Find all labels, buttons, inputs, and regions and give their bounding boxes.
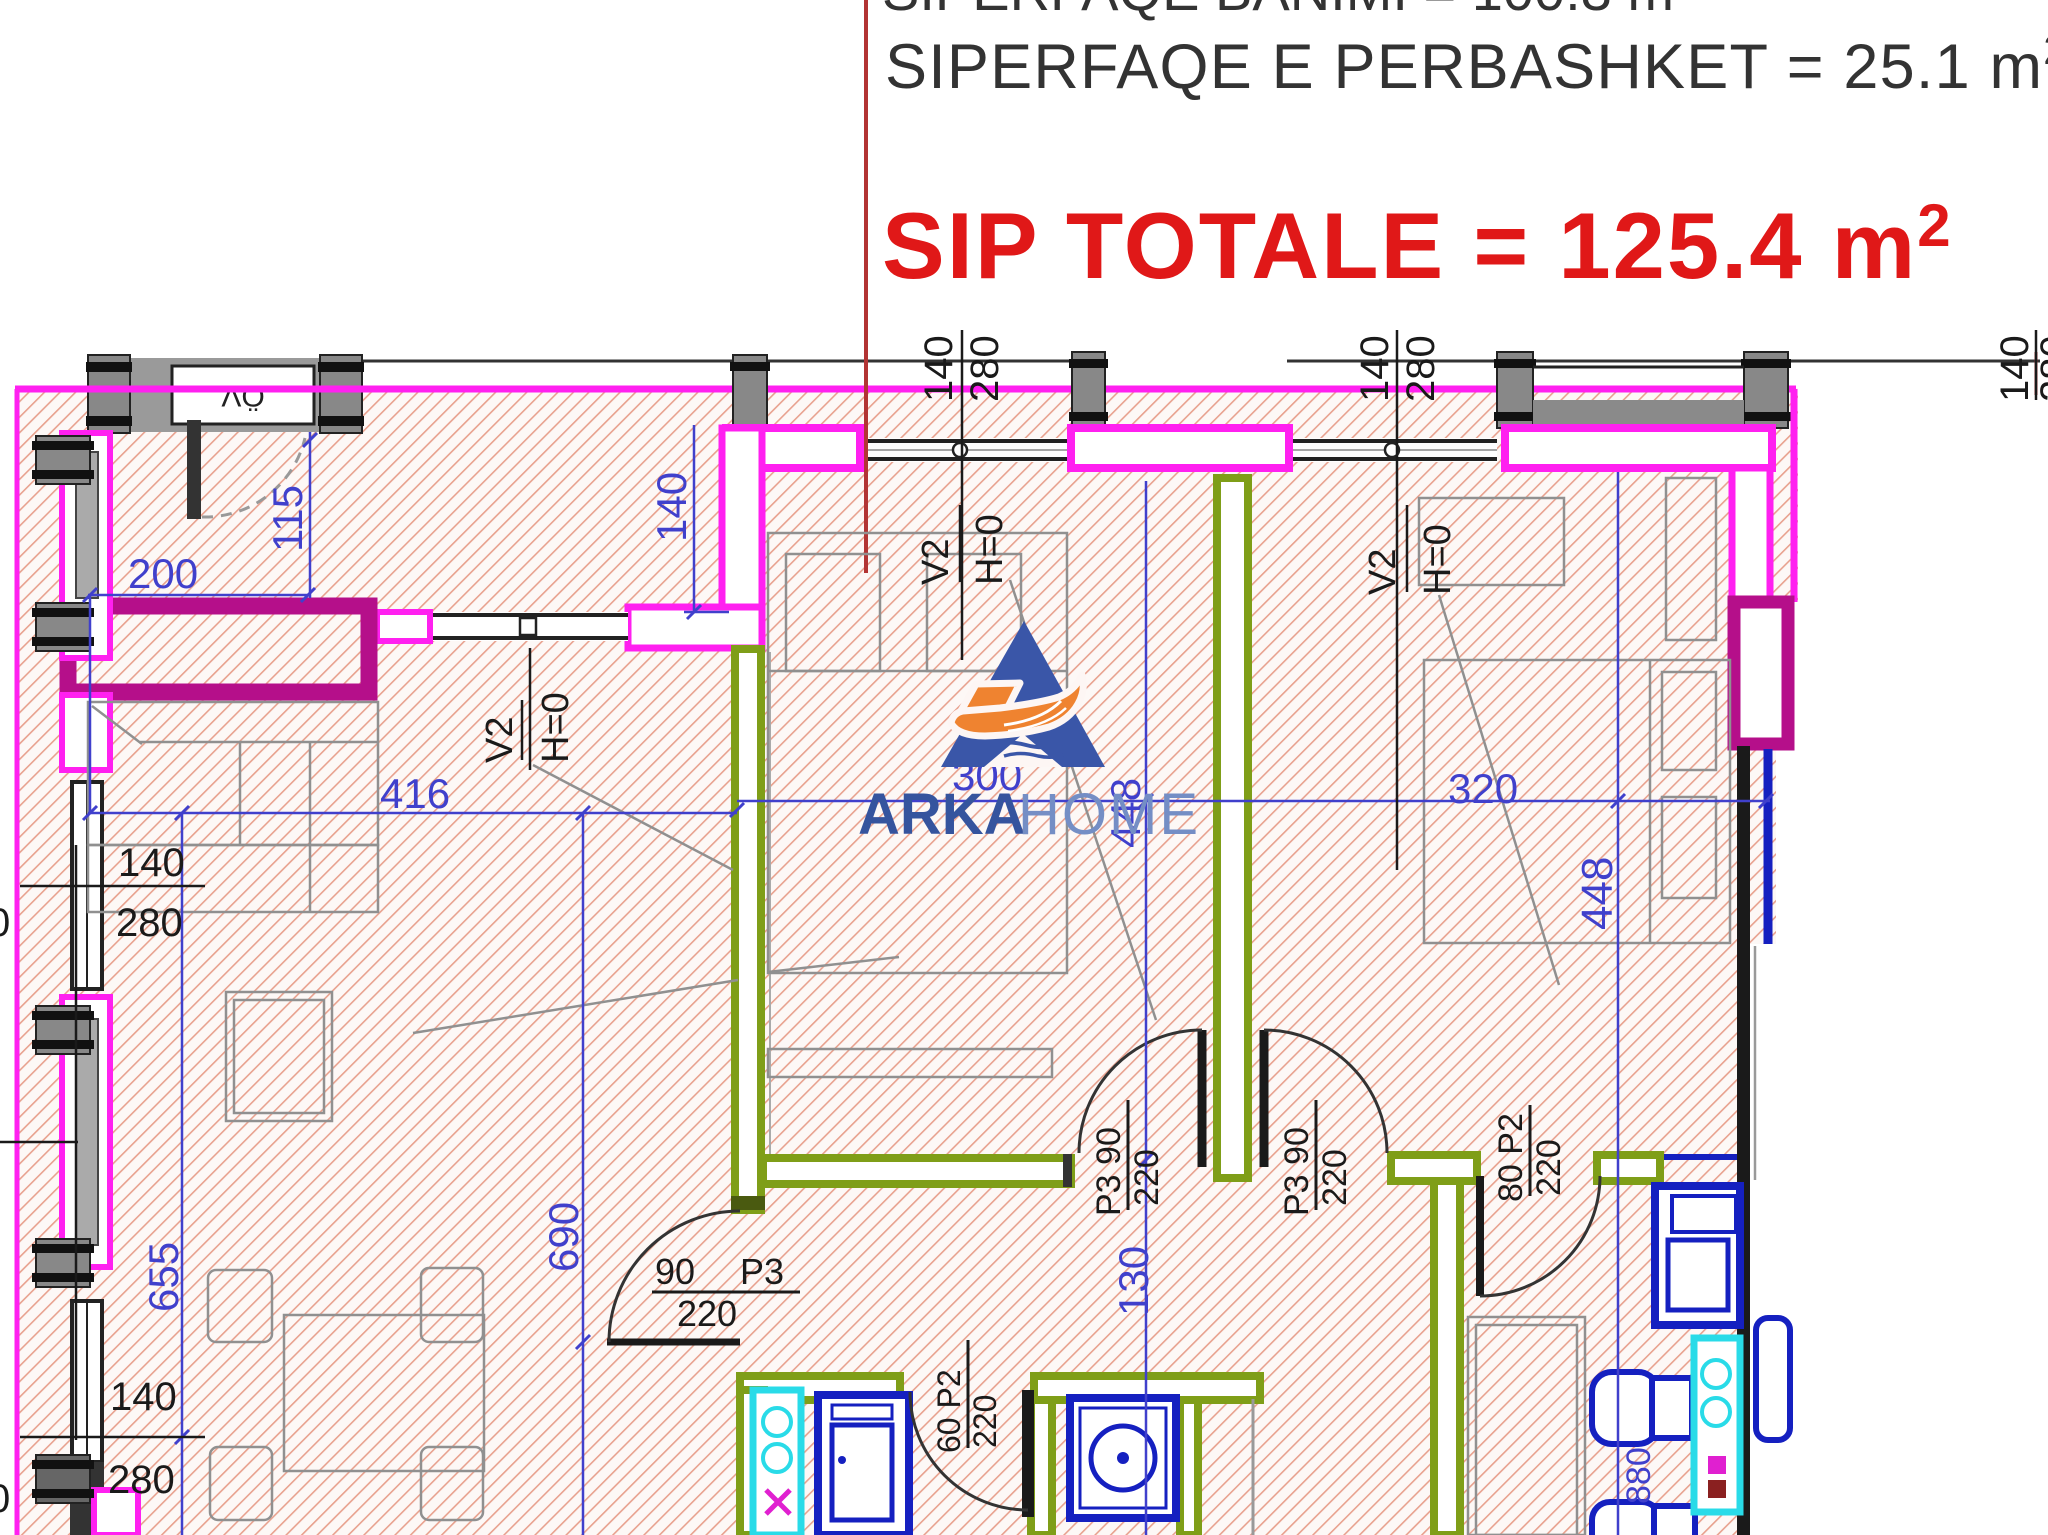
svg-text:200: 200 <box>128 550 198 597</box>
svg-text:220: 220 <box>1316 1149 1354 1206</box>
svg-text:V2: V2 <box>1362 549 1404 595</box>
svg-text:220: 220 <box>1128 1149 1166 1206</box>
svg-text:140: 140 <box>648 472 695 542</box>
svg-text:416: 416 <box>380 770 450 817</box>
svg-text:280: 280 <box>963 335 1007 402</box>
svg-text:HOME: HOME <box>1018 782 1200 847</box>
svg-text:220: 220 <box>1530 1139 1568 1196</box>
svg-text:0: 0 <box>0 1477 10 1521</box>
svg-text:80 P2: 80 P2 <box>1492 1113 1530 1202</box>
svg-text:690: 690 <box>540 1202 587 1272</box>
svg-text:280: 280 <box>108 1458 175 1502</box>
svg-text:140: 140 <box>118 841 185 885</box>
svg-text:280: 280 <box>2033 335 2048 402</box>
svg-text:140: 140 <box>917 335 961 402</box>
svg-text:448: 448 <box>1573 857 1622 930</box>
svg-text:130: 130 <box>1110 1246 1157 1316</box>
svg-text:115: 115 <box>264 485 311 552</box>
svg-text:280: 280 <box>1399 335 1443 402</box>
svg-text:SIP TOTALE = 125.4 m2: SIP TOTALE = 125.4 m2 <box>882 192 1953 298</box>
svg-text:H=0: H=0 <box>1417 524 1459 595</box>
svg-text:880: 880 <box>1620 1447 1658 1504</box>
svg-text:140: 140 <box>110 1375 177 1419</box>
svg-text:H=0: H=0 <box>535 692 577 763</box>
svg-text:60 P2: 60 P2 <box>931 1369 967 1453</box>
svg-text:320: 320 <box>1448 765 1518 812</box>
svg-text:280: 280 <box>116 901 183 945</box>
svg-text:V2: V2 <box>915 539 957 585</box>
svg-text:90: 90 <box>655 1251 695 1292</box>
svg-text:140: 140 <box>1353 335 1397 402</box>
svg-text:H=0: H=0 <box>969 514 1011 585</box>
svg-text:220: 220 <box>967 1395 1003 1448</box>
svg-text:P3 90: P3 90 <box>1278 1127 1316 1216</box>
svg-text:ÖV: ÖV <box>221 379 264 412</box>
svg-text:P3: P3 <box>740 1251 784 1292</box>
svg-text:SIPERFAQE BANIMI = 100.3 m: SIPERFAQE BANIMI = 100.3 m <box>882 0 1674 22</box>
svg-text:140: 140 <box>1993 335 2037 402</box>
svg-text:P3 90: P3 90 <box>1090 1127 1128 1216</box>
svg-text:0: 0 <box>0 901 10 945</box>
svg-text:220: 220 <box>677 1293 737 1334</box>
svg-text:SIPERFAQE E PERBASHKET = 25.1: SIPERFAQE E PERBASHKET = 25.1 m2 <box>885 26 2048 102</box>
svg-text:655: 655 <box>140 1242 187 1312</box>
svg-text:ARKA: ARKA <box>858 782 1026 847</box>
svg-text:V2: V2 <box>479 717 521 763</box>
